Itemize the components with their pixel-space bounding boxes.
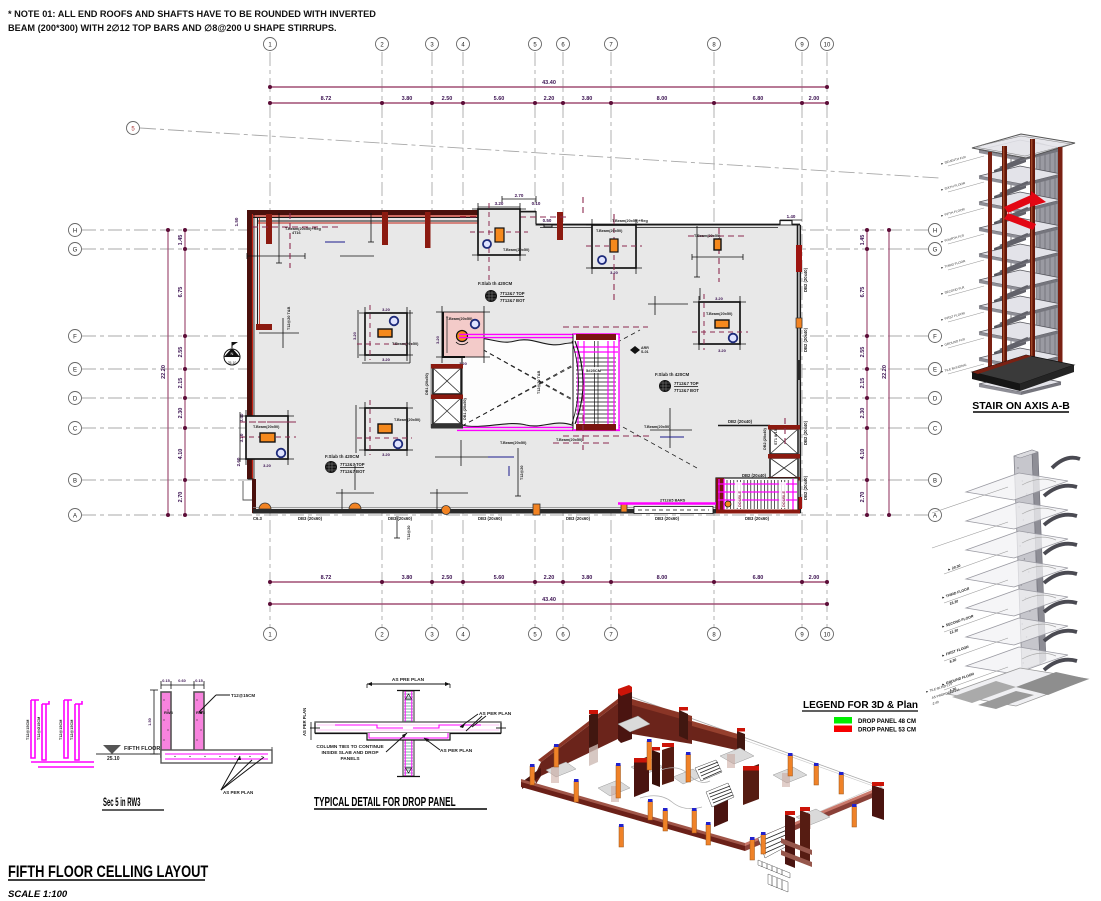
svg-text:G: G (933, 248, 938, 254)
svg-text:DROP PANEL 53 CM: DROP PANEL 53 CM (858, 728, 916, 734)
svg-text:0.10: 0.10 (532, 201, 541, 206)
svg-text:2.30: 2.30 (860, 408, 866, 419)
svg-text:T.Beam(20x50): T.Beam(20x50) (253, 425, 280, 429)
svg-text:2.00: 2.00 (809, 96, 820, 102)
svg-text:H: H (933, 229, 937, 235)
svg-text:DB3 (20x60): DB3 (20x60) (298, 516, 323, 521)
svg-text:DB3 (20x60): DB3 (20x60) (745, 516, 770, 521)
svg-text:8.30: 8.30 (949, 658, 957, 664)
svg-text:3.20: 3.20 (352, 331, 357, 340)
svg-text:2.50: 2.50 (442, 96, 453, 102)
svg-text:DROP PANEL 48 CM: DROP PANEL 48 CM (858, 719, 916, 725)
svg-text:3.20: 3.20 (435, 335, 440, 344)
svg-text:5#25CM: 5#25CM (586, 368, 602, 373)
svg-text:5.60: 5.60 (494, 575, 505, 581)
svg-text:AS PER PLAN: AS PER PLAN (302, 708, 307, 736)
svg-text:2.55: 2.55 (860, 347, 866, 358)
svg-text:43.40: 43.40 (542, 597, 556, 603)
svg-text:1.45: 1.45 (860, 235, 866, 246)
svg-text:F.Slab th 420CM: F.Slab th 420CM (478, 281, 513, 286)
svg-text:1.40: 1.40 (787, 214, 796, 219)
svg-text:Sec 5 in RW3: Sec 5 in RW3 (103, 796, 140, 809)
svg-text:SCALE 1:100: SCALE 1:100 (8, 889, 68, 900)
svg-text:7T12&7 BOT: 7T12&7 BOT (340, 469, 365, 474)
svg-text:3.20: 3.20 (382, 357, 391, 362)
svg-text:DB2 (20x40): DB2 (20x40) (742, 473, 767, 478)
svg-text:25.10: 25.10 (107, 756, 120, 762)
svg-text:1.45: 1.45 (178, 235, 184, 246)
svg-text:1.50: 1.50 (148, 718, 152, 725)
svg-text:3.20: 3.20 (263, 463, 272, 468)
svg-text:C6.3: C6.3 (253, 516, 263, 521)
svg-text:10: 10 (824, 43, 831, 49)
svg-text:2.30: 2.30 (178, 408, 184, 419)
svg-text:4.10: 4.10 (178, 449, 184, 460)
svg-text:DB1 (20x50): DB1 (20x50) (463, 398, 467, 420)
svg-text:3.20: 3.20 (382, 452, 391, 457)
svg-text:2.70: 2.70 (515, 193, 524, 198)
svg-text:2.70: 2.70 (178, 492, 184, 503)
svg-text:10: 10 (824, 633, 831, 639)
svg-text:E: E (73, 368, 77, 374)
svg-text:T.Beam(20x50)+Reg: T.Beam(20x50)+Reg (285, 227, 321, 231)
svg-text:LEGEND FOR 3D & Plan: LEGEND FOR 3D & Plan (803, 700, 918, 711)
svg-text:3.20: 3.20 (718, 348, 727, 353)
svg-text:8.00: 8.00 (657, 96, 668, 102)
svg-text:► SECOND FLOOR: ► SECOND FLOOR (941, 614, 974, 629)
svg-text:DB1 (20x50): DB1 (20x50) (425, 373, 429, 395)
svg-text:T.Beam(20x50): T.Beam(20x50) (694, 234, 721, 238)
svg-text:DB3 (20x60): DB3 (20x60) (655, 516, 680, 521)
svg-text:E: E (933, 368, 937, 374)
svg-text:T12@15CM: T12@15CM (231, 693, 255, 698)
svg-text:RW3: RW3 (164, 710, 174, 715)
svg-text:AS PER PLAN: AS PER PLAN (479, 711, 512, 717)
svg-text:22.20: 22.20 (161, 365, 167, 379)
svg-text:3.80: 3.80 (402, 96, 413, 102)
svg-text:N: N (231, 351, 234, 356)
svg-text:6.75: 6.75 (860, 287, 866, 298)
svg-text:2.15: 2.15 (860, 378, 866, 389)
svg-text:4.10: 4.10 (860, 449, 866, 460)
svg-text:2.55: 2.55 (178, 347, 184, 358)
svg-text:3.80: 3.80 (402, 575, 413, 581)
svg-text:T.Beam(20x50): T.Beam(20x50) (503, 248, 530, 252)
svg-text:T.Beam(20x50): T.Beam(20x50) (706, 312, 733, 316)
svg-text:F.Slab th 420CM: F.Slab th 420CM (655, 372, 690, 377)
svg-text:B: B (73, 479, 77, 485)
svg-text:C: C (73, 427, 78, 433)
svg-text:2T12&5 BARS: 2T12&5 BARS (660, 499, 686, 503)
svg-text:T12@15CM: T12@15CM (59, 720, 63, 740)
svg-text:► 20.30: ► 20.30 (947, 564, 961, 572)
svg-text:BEAM (200*300) WITH 2∅12 TOP B: BEAM (200*300) WITH 2∅12 TOP BARS AND ∅8… (8, 23, 337, 33)
svg-text:5.60: 5.60 (494, 96, 505, 102)
svg-text:H: H (73, 229, 77, 235)
svg-text:* NOTE 01: ALL END ROOFS AND S: * NOTE 01: ALL END ROOFS AND SHAFTS HAVE… (8, 9, 376, 19)
svg-text:AS PER PLAN: AS PER PLAN (223, 790, 253, 795)
svg-text:7T12&7 TOP: 7T12&7 TOP (674, 381, 699, 386)
svg-text:A: A (933, 514, 937, 520)
svg-text:D: D (73, 397, 78, 403)
svg-text:16.30: 16.30 (949, 599, 959, 606)
svg-text:T12@20: T12@20 (407, 526, 411, 540)
svg-text:S-01: S-01 (641, 350, 649, 354)
svg-text:ST1 W15: ST1 W15 (774, 429, 778, 445)
svg-text:8.72: 8.72 (321, 96, 332, 102)
svg-text:2.70: 2.70 (860, 492, 866, 503)
svg-text:T.Beam(20x50): T.Beam(20x50) (500, 441, 527, 445)
svg-text:FIFTH FLOOR CELLING LAYOUT: FIFTH FLOOR CELLING LAYOUT (8, 864, 208, 882)
svg-text:DB3 (20x60): DB3 (20x60) (566, 516, 591, 521)
svg-text:T12@20 T&B: T12@20 T&B (287, 306, 291, 330)
svg-text:3.20: 3.20 (715, 296, 724, 301)
svg-text:43.40: 43.40 (542, 80, 556, 86)
svg-text:DB2 (20x40): DB2 (20x40) (803, 267, 808, 292)
svg-text:C: C (933, 427, 938, 433)
svg-text:8.00: 8.00 (657, 575, 668, 581)
svg-text:DB2 (20x40): DB2 (20x40) (728, 419, 753, 424)
svg-text:FIFTH FLOOR: FIFTH FLOOR (124, 746, 160, 752)
svg-text:TYPICAL DETAIL FOR DROP PANEL: TYPICAL DETAIL FOR DROP PANEL (314, 795, 456, 809)
svg-text:4T16: 4T16 (292, 231, 301, 235)
svg-text:T.Beam(20x50)+Reg: T.Beam(20x50)+Reg (612, 219, 648, 223)
svg-text:T.Beam(20x50): T.Beam(20x50) (394, 418, 421, 422)
svg-text:25.10: 25.10 (228, 361, 237, 365)
svg-text:DB2 (20x40): DB2 (20x40) (803, 327, 808, 352)
svg-text:8.72: 8.72 (321, 575, 332, 581)
svg-text:22.20: 22.20 (882, 365, 888, 379)
svg-text:2.20: 2.20 (544, 575, 555, 581)
svg-text:6.75: 6.75 (178, 287, 184, 298)
svg-text:2.50: 2.50 (442, 575, 453, 581)
svg-text:7T12&7 BOT: 7T12&7 BOT (674, 388, 699, 393)
svg-text:► FIRST FLOOR: ► FIRST FLOOR (941, 645, 970, 658)
svg-text:► FOURTH FLR: ► FOURTH FLR (940, 233, 965, 244)
svg-text:3.20: 3.20 (610, 270, 619, 275)
svg-text:G: G (73, 248, 78, 254)
svg-text:F: F (933, 335, 937, 341)
svg-text:DOUBLE: DOUBLE (782, 491, 786, 507)
svg-text:2.00: 2.00 (809, 575, 820, 581)
svg-text:DOUBLE: DOUBLE (738, 491, 742, 507)
svg-text:T.Beam(20x50): T.Beam(20x50) (392, 342, 419, 346)
svg-text:T.Beam(20x50): T.Beam(20x50) (446, 317, 473, 321)
svg-text:AS PRE PLAN: AS PRE PLAN (392, 677, 425, 683)
svg-text:F.Slab th 420CM: F.Slab th 420CM (325, 454, 360, 459)
svg-text:► THIRD FLOOR: ► THIRD FLOOR (941, 587, 970, 600)
svg-text:6.80: 6.80 (753, 96, 764, 102)
svg-text:T12@15CM: T12@15CM (70, 720, 74, 740)
svg-text:0.60: 0.60 (178, 679, 185, 683)
svg-text:STAIR ON AXIS A-B: STAIR ON AXIS A-B (972, 400, 1070, 412)
svg-text:INSIDE SLAB AND DROP: INSIDE SLAB AND DROP (321, 750, 379, 756)
svg-text:3.20: 3.20 (495, 201, 504, 206)
svg-text:2.20: 2.20 (544, 96, 555, 102)
svg-text:-2.40: -2.40 (931, 700, 939, 706)
svg-text:T12@Ø15CM: T12@Ø15CM (37, 717, 41, 740)
svg-text:COLUMN TIES TO CONTINUE: COLUMN TIES TO CONTINUE (316, 744, 384, 750)
svg-text:D: D (933, 397, 938, 403)
svg-text:3.80: 3.80 (582, 575, 593, 581)
svg-text:T.Beam(20x50): T.Beam(20x50) (644, 425, 671, 429)
svg-text:DB2 (20x40): DB2 (20x40) (803, 475, 808, 500)
svg-text:3.80: 3.80 (582, 96, 593, 102)
svg-text:7T12&7 TOP: 7T12&7 TOP (340, 462, 365, 467)
svg-text:PANELS: PANELS (340, 756, 360, 762)
svg-text:6.80: 6.80 (753, 575, 764, 581)
svg-text:DB2 (20x40): DB2 (20x40) (763, 428, 767, 450)
svg-text:A: A (73, 514, 77, 520)
svg-text:3.20: 3.20 (382, 307, 391, 312)
svg-text:12.30: 12.30 (949, 628, 959, 635)
svg-text:DB3 (20x60): DB3 (20x60) (388, 516, 413, 521)
svg-text:7T12&7 BOT: 7T12&7 BOT (500, 298, 525, 303)
svg-text:1.50: 1.50 (234, 217, 239, 226)
svg-text:DB2 (20x40): DB2 (20x40) (803, 420, 808, 445)
svg-text:T.Beam(20x50): T.Beam(20x50) (556, 438, 583, 442)
svg-text:DB3 (20x60): DB3 (20x60) (478, 516, 503, 521)
svg-text:T12@15CM: T12@15CM (26, 720, 30, 740)
svg-text:F: F (73, 335, 77, 341)
svg-text:2.15: 2.15 (178, 378, 184, 389)
svg-text:B: B (933, 479, 937, 485)
svg-text:T12@20: T12@20 (520, 466, 524, 480)
svg-text:7T12&7 TOP: 7T12&7 TOP (500, 291, 525, 296)
svg-text:0.15: 0.15 (195, 679, 202, 683)
svg-text:0.50: 0.50 (543, 218, 552, 223)
svg-text:0.15: 0.15 (162, 679, 169, 683)
svg-text:T12@20 T&B: T12@20 T&B (537, 370, 541, 394)
svg-text:AS PER PLAN: AS PER PLAN (440, 748, 473, 754)
svg-text:T.Beam(20x50): T.Beam(20x50) (596, 229, 623, 233)
